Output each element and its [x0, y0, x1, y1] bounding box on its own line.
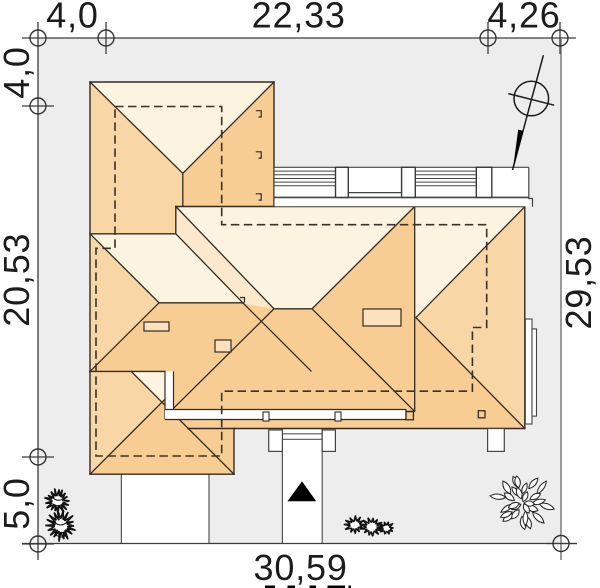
svg-text:4,0: 4,0 [0, 46, 37, 98]
svg-text:20,53: 20,53 [0, 233, 37, 327]
svg-text:22,33: 22,33 [252, 0, 346, 35]
svg-text:5,0: 5,0 [0, 477, 37, 529]
svg-text:29,53: 29,53 [558, 235, 599, 329]
svg-text:4,26: 4,26 [487, 0, 560, 35]
svg-text:4,0: 4,0 [46, 0, 98, 35]
svg-text:30,59: 30,59 [254, 547, 348, 588]
